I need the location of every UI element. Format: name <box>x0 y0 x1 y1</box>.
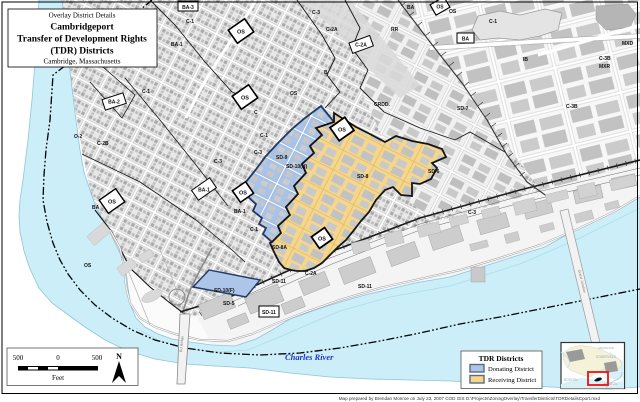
svg-text:BA-2: BA-2 <box>108 100 120 106</box>
svg-text:Cambridge, Massachusetts: Cambridge, Massachusetts <box>43 58 120 66</box>
svg-text:C-1: C-1 <box>186 19 194 25</box>
svg-text:C-1: C-1 <box>142 89 150 95</box>
svg-text:TDR Districts: TDR Districts <box>479 354 524 363</box>
svg-text:C-1: C-1 <box>260 133 268 139</box>
svg-text:C-2A: C-2A <box>355 43 367 49</box>
svg-text:OS: OS <box>237 30 245 36</box>
svg-text:C-3: C-3 <box>312 10 320 16</box>
svg-text:500: 500 <box>92 354 103 362</box>
svg-text:C-3B: C-3B <box>566 104 578 110</box>
svg-text:(TDR) Districts: (TDR) Districts <box>50 46 113 57</box>
svg-text:C-3: C-3 <box>254 150 262 156</box>
svg-text:SD-10(H): SD-10(H) <box>286 164 307 170</box>
svg-text:0: 0 <box>56 354 60 362</box>
svg-text:C-1: C-1 <box>489 19 497 25</box>
svg-text:OS: OS <box>338 128 346 134</box>
svg-text:C-2A: C-2A <box>326 27 338 33</box>
svg-text:BA: BA <box>462 37 470 43</box>
svg-text:OS: OS <box>290 91 298 97</box>
svg-text:SD-7: SD-7 <box>457 106 469 112</box>
svg-text:IB: IB <box>523 57 528 63</box>
svg-text:OS: OS <box>318 237 326 243</box>
svg-text:OS: OS <box>108 200 116 206</box>
svg-text:BA-3: BA-3 <box>182 5 194 11</box>
svg-text:Map prepared by Brendan Monroe: Map prepared by Brendan Monroe on July 2… <box>339 396 601 401</box>
svg-text:C-2B: C-2B <box>97 141 109 147</box>
svg-text:C-2A: C-2A <box>305 271 317 277</box>
svg-text:Charles River: Charles River <box>285 352 334 362</box>
svg-text:Cambridgeport: Cambridgeport <box>50 23 114 33</box>
svg-text:BA-1: BA-1 <box>198 188 210 194</box>
svg-text:C: C <box>254 110 258 116</box>
svg-text:SD-6: SD-6 <box>428 169 440 175</box>
svg-text:MXR: MXR <box>599 64 611 70</box>
svg-text:SD-10(F): SD-10(F) <box>214 288 235 294</box>
svg-text:SD-11: SD-11 <box>262 310 276 316</box>
svg-text:Donating District: Donating District <box>488 366 534 373</box>
svg-text:BA-1: BA-1 <box>171 42 183 48</box>
svg-text:OS: OS <box>239 191 247 197</box>
svg-text:OS: OS <box>436 5 444 11</box>
svg-text:SOMERVILLE: SOMERVILLE <box>596 355 616 359</box>
svg-text:C-3B: C-3B <box>599 56 611 62</box>
svg-text:500: 500 <box>13 354 24 362</box>
svg-text:C-1: C-1 <box>250 227 258 233</box>
svg-text:BA-1: BA-1 <box>234 209 246 215</box>
svg-text:C-3: C-3 <box>468 210 476 216</box>
svg-text:CRDD.: CRDD. <box>374 102 390 108</box>
svg-text:OS: OS <box>84 263 92 269</box>
svg-text:Overlay District Details: Overlay District Details <box>49 12 116 20</box>
svg-text:ARLINGTON: ARLINGTON <box>598 346 614 350</box>
svg-text:O-2: O-2 <box>74 134 83 140</box>
svg-text:C-3: C-3 <box>214 159 222 165</box>
svg-text:SD-9: SD-9 <box>276 155 288 161</box>
svg-text:B: B <box>324 70 328 76</box>
svg-text:RR: RR <box>391 27 399 33</box>
svg-text:SD-8A: SD-8A <box>272 245 287 251</box>
svg-text:Transfer of Development Rights: Transfer of Development Rights <box>17 35 147 45</box>
svg-text:BA: BA <box>407 5 415 11</box>
svg-text:Feet: Feet <box>52 374 64 382</box>
svg-text:SD-11: SD-11 <box>358 284 372 290</box>
svg-text:Receiving District: Receiving District <box>488 377 536 384</box>
svg-text:BA: BA <box>92 205 100 211</box>
svg-text:OS: OS <box>449 9 457 15</box>
svg-text:OS: OS <box>241 96 249 102</box>
svg-text:N: N <box>116 352 122 361</box>
svg-text:SD-5: SD-5 <box>223 301 235 307</box>
svg-text:MXD: MXD <box>622 41 634 47</box>
svg-text:BOSTON: BOSTON <box>564 378 578 382</box>
svg-text:SD-11: SD-11 <box>272 279 286 285</box>
svg-text:SD-8: SD-8 <box>357 174 369 180</box>
